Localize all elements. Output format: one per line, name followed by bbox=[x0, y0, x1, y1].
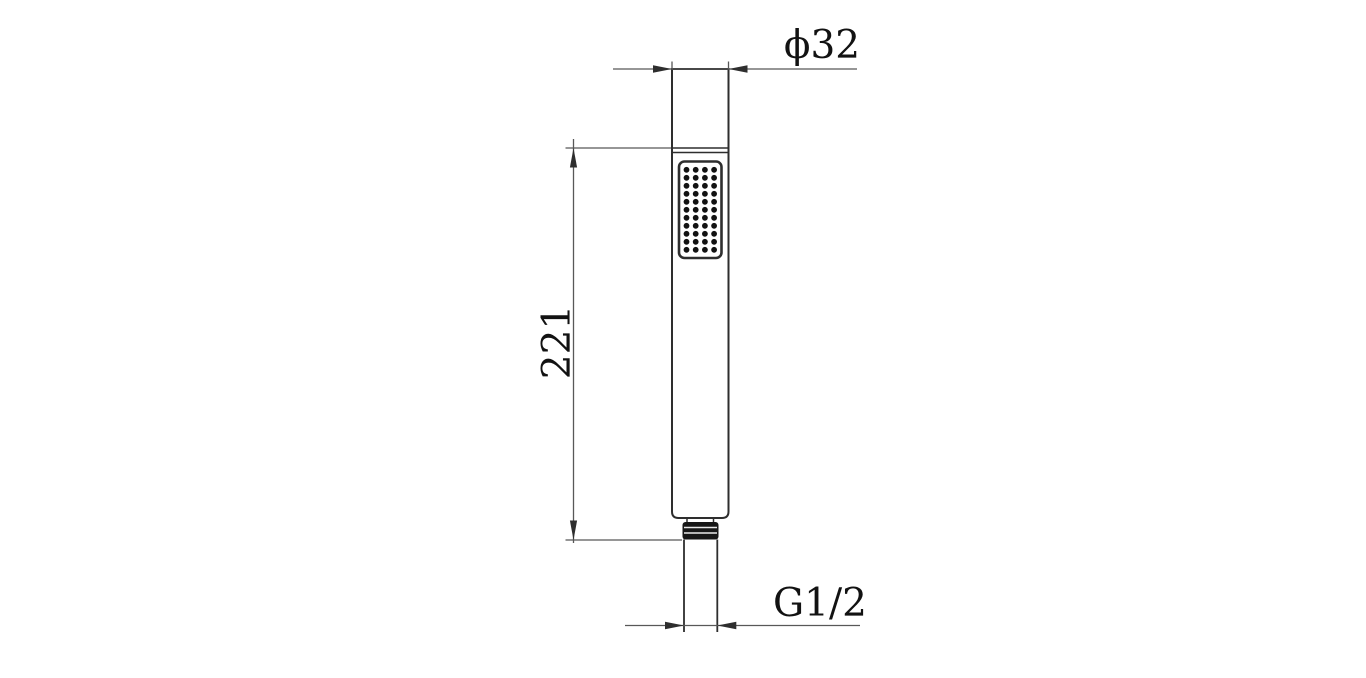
spray-nozzle-dot bbox=[693, 207, 699, 213]
spray-nozzle-dot bbox=[684, 231, 690, 237]
dimension-head-diameter: ϕ32 bbox=[613, 23, 860, 73]
shower-wand bbox=[672, 69, 729, 632]
spray-nozzle-dot bbox=[684, 239, 690, 245]
spray-nozzle-dot bbox=[684, 175, 690, 181]
spray-nozzle-dot bbox=[684, 207, 690, 213]
drawing-canvas: ϕ32 221 G1/2 bbox=[0, 0, 1366, 678]
spray-nozzle-dot bbox=[711, 207, 717, 213]
spray-nozzle-dot bbox=[702, 183, 708, 189]
thread-dimension-label: G1/2 bbox=[773, 581, 867, 626]
spray-nozzle-dot bbox=[684, 247, 690, 253]
spray-nozzle-dot bbox=[684, 215, 690, 221]
spray-nozzle-dot bbox=[693, 191, 699, 197]
thread-arrow-left bbox=[665, 622, 684, 629]
spray-nozzle-dot bbox=[702, 215, 708, 221]
spray-nozzle-dot bbox=[711, 231, 717, 237]
spray-nozzle-dot bbox=[684, 199, 690, 205]
spray-nozzle-dot bbox=[684, 183, 690, 189]
spray-nozzle-dot bbox=[711, 215, 717, 221]
length-dimension-label: 221 bbox=[535, 305, 580, 379]
length-arrow-bottom bbox=[570, 521, 577, 541]
spray-nozzle-dot bbox=[693, 167, 699, 173]
diameter-dimension-label: ϕ32 bbox=[784, 23, 860, 68]
spray-nozzle-dot bbox=[702, 175, 708, 181]
thread-rings bbox=[683, 522, 719, 540]
spray-nozzle-dot bbox=[711, 167, 717, 173]
spray-nozzle-dot bbox=[702, 231, 708, 237]
handle-body-outline bbox=[672, 69, 729, 518]
spray-nozzle-dot bbox=[702, 223, 708, 229]
dimension-body-length: 221 bbox=[535, 139, 682, 543]
spray-nozzle-dot bbox=[693, 223, 699, 229]
spray-nozzle-dot bbox=[684, 191, 690, 197]
spray-nozzle-dot bbox=[711, 239, 717, 245]
technical-drawing: ϕ32 221 G1/2 bbox=[0, 0, 1366, 678]
spray-nozzle-dot bbox=[702, 199, 708, 205]
spray-nozzle-dot bbox=[702, 247, 708, 253]
spray-nozzle-dot bbox=[711, 199, 717, 205]
spray-nozzle-dot bbox=[702, 207, 708, 213]
spray-nozzle-dot bbox=[711, 247, 717, 253]
diameter-arrow-left bbox=[653, 65, 672, 72]
spray-nozzle-dot bbox=[684, 223, 690, 229]
dimension-thread-size: G1/2 bbox=[625, 581, 867, 629]
spray-nozzle-dot bbox=[693, 183, 699, 189]
spray-nozzle-dot bbox=[711, 183, 717, 189]
spray-nozzle-dot bbox=[693, 175, 699, 181]
diameter-arrow-right bbox=[729, 65, 748, 72]
thread-arrow-right bbox=[717, 622, 736, 629]
spray-nozzle-dot bbox=[693, 247, 699, 253]
spray-nozzle-dot bbox=[711, 175, 717, 181]
spray-nozzle-dot bbox=[684, 167, 690, 173]
spray-nozzle-dot bbox=[693, 239, 699, 245]
spray-nozzle-dot bbox=[702, 167, 708, 173]
spray-nozzle-dot bbox=[711, 191, 717, 197]
spray-nozzle-dot bbox=[702, 239, 708, 245]
length-arrow-top bbox=[570, 148, 577, 168]
spray-nozzle-dot bbox=[711, 223, 717, 229]
spray-nozzle-dot bbox=[693, 215, 699, 221]
spray-nozzle-dot bbox=[693, 231, 699, 237]
spray-nozzle-dot bbox=[702, 191, 708, 197]
spray-nozzle-dot bbox=[693, 199, 699, 205]
